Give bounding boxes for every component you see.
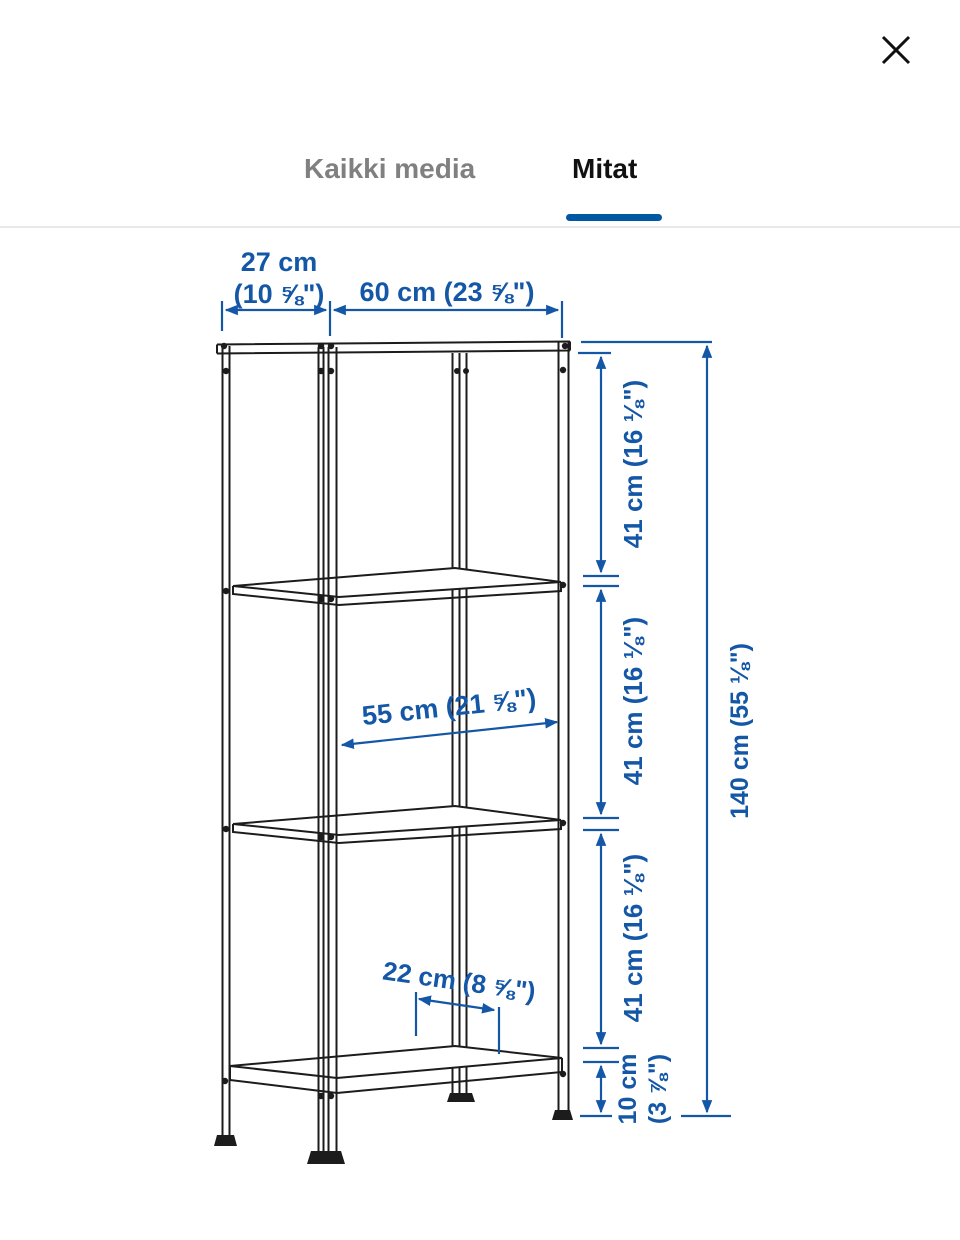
dimensions-modal: Kaikki media Mitat <box>0 0 960 1240</box>
width-label: 60 cm (23 ⅝") <box>360 277 535 307</box>
product-dimension-drawing: 27 cm (10 ⅝") 60 cm (23 ⅝") 55 cm (21 ⅝"… <box>0 230 960 1240</box>
height-label: 140 cm (55 ⅛") <box>726 643 754 819</box>
inner-width-label: 55 cm (21 ⅝") <box>361 683 538 731</box>
tab-mitat[interactable]: Mitat <box>572 151 637 187</box>
shelf-spacing-label-3: 41 cm (16 ⅛") <box>618 854 648 1022</box>
shelf-spacing-label-2: 41 cm (16 ⅛") <box>618 617 648 785</box>
bottom-clearance-in-label: (3 ⅞") <box>644 1054 672 1124</box>
bottom-clearance-cm-label: 10 cm <box>614 1054 642 1125</box>
shelf-unit-outline <box>214 342 573 1165</box>
depth-cm-label: 27 cm <box>241 247 318 277</box>
depth-in-label: (10 ⅝") <box>234 279 325 309</box>
close-icon <box>874 28 918 72</box>
shelf-spacing-label-1: 41 cm (16 ⅛") <box>618 380 648 548</box>
feet <box>214 1093 573 1164</box>
active-tab-underline <box>566 214 662 221</box>
header-divider <box>0 226 960 228</box>
tab-kaikki-media[interactable]: Kaikki media <box>304 151 475 187</box>
close-button[interactable] <box>872 26 920 74</box>
